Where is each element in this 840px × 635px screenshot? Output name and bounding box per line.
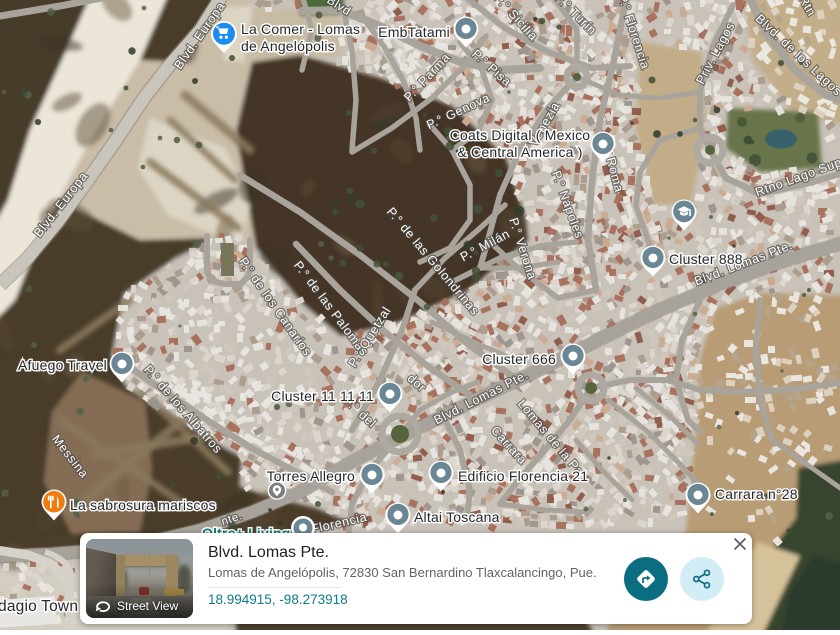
svg-text:Altai Toscana: Altai Toscana	[414, 509, 500, 525]
svg-text:La sabrosura mariscos: La sabrosura mariscos	[70, 497, 216, 513]
svg-text:Coats Digital ( Mexico: Coats Digital ( Mexico	[450, 127, 591, 143]
svg-text:de Angelópolis: de Angelópolis	[241, 38, 335, 54]
svg-text:Carrara n°28: Carrara n°28	[715, 486, 798, 502]
svg-text:dagio Town: dagio Town	[0, 598, 78, 615]
svg-text:EmbTatami: EmbTatami	[378, 24, 450, 40]
svg-text:Cluster 666: Cluster 666	[482, 351, 556, 367]
svg-text:La Comer - Lomas: La Comer - Lomas	[241, 21, 360, 37]
svg-text:Afuego Travel: Afuego Travel	[18, 357, 107, 373]
svg-text:Cluster 888: Cluster 888	[669, 251, 743, 267]
svg-text:& Central America ): & Central America )	[457, 144, 582, 160]
svg-text:Cluster 11 11 11: Cluster 11 11 11	[271, 388, 374, 404]
svg-text:Edificio Florencia 21: Edificio Florencia 21	[458, 468, 588, 484]
svg-text:Torres Allegro: Torres Allegro	[267, 468, 355, 484]
